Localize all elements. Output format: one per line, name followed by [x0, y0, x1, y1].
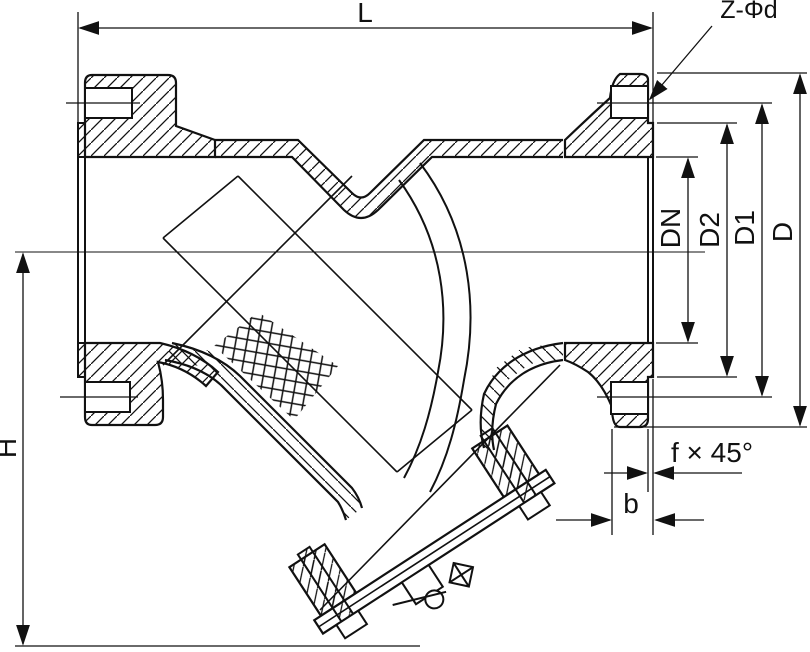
dim-label-raised-face-diameter: D2	[694, 212, 725, 248]
left-raised-face-edges	[78, 123, 85, 377]
dim-label-raised-face-chamfer: f × 45°	[671, 437, 753, 468]
branch-cover-assembly	[279, 416, 576, 652]
dim-label-flange-thickness: b	[623, 488, 639, 519]
dim-label-bolt-holes: Z-Φd	[720, 0, 777, 24]
chamber-inner-contours	[399, 163, 471, 492]
dim-label-length: L	[357, 0, 373, 28]
left-flange-upper	[78, 75, 215, 157]
y-strainer-drawing-canvas: L Z-Φd DN D2 D1 D H f × 45° b	[0, 0, 810, 652]
dim-label-bolt-circle-diameter: D1	[729, 210, 760, 246]
right-flange-upper	[565, 74, 653, 157]
screen-mesh	[214, 312, 338, 420]
y-strainer-section-drawing: L Z-Φd DN D2 D1 D H f × 45° b	[0, 0, 810, 652]
dim-label-nominal-diameter: DN	[655, 208, 686, 248]
dim-label-flange-outer-diameter: D	[767, 222, 798, 242]
right-raised-face-edges	[648, 123, 653, 377]
dim-label-height: H	[0, 438, 22, 458]
right-flange-lower	[565, 343, 653, 427]
